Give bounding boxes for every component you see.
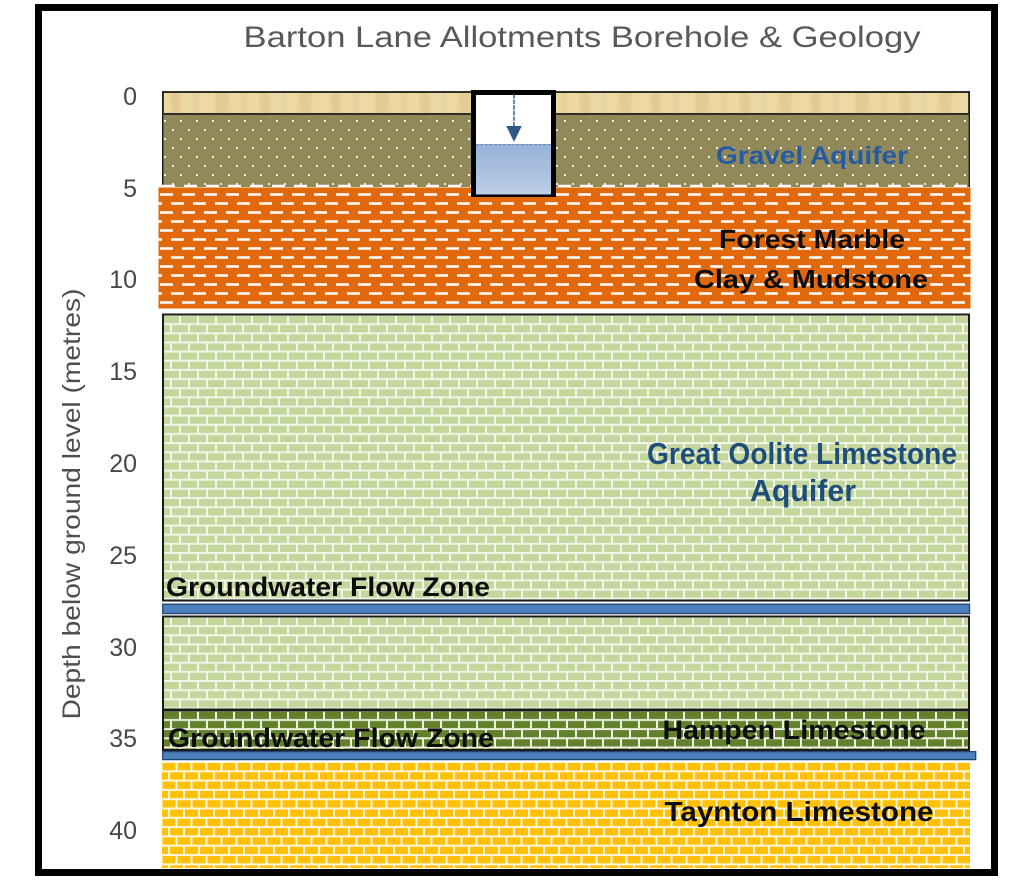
svg-text:Groundwater Flow Zone: Groundwater Flow Zone [168, 723, 494, 753]
svg-text:40: 40 [109, 817, 137, 845]
svg-text:20: 20 [109, 450, 137, 478]
svg-text:25: 25 [109, 542, 137, 570]
svg-text:Groundwater Flow Zone: Groundwater Flow Zone [166, 572, 490, 602]
svg-text:15: 15 [109, 358, 137, 386]
svg-text:Aquifer: Aquifer [750, 473, 856, 508]
svg-text:35: 35 [109, 725, 137, 753]
svg-text:10: 10 [109, 266, 137, 294]
svg-text:Depth below ground level (metr: Depth below ground level (metres) [58, 289, 86, 720]
svg-text:Forest Marble: Forest Marble [719, 224, 905, 254]
svg-text:Taynton Limestone: Taynton Limestone [665, 796, 934, 827]
svg-text:Clay & Mudstone: Clay & Mudstone [694, 264, 928, 294]
svg-text:Gravel Aquifer: Gravel Aquifer [716, 142, 908, 170]
svg-text:Barton Lane Allotments Borehol: Barton Lane Allotments Borehole & Geolog… [244, 21, 921, 54]
svg-text:30: 30 [109, 634, 137, 662]
svg-text:Hampen Limestone: Hampen Limestone [663, 715, 926, 745]
svg-text:5: 5 [123, 175, 137, 203]
svg-text:0: 0 [123, 83, 137, 111]
svg-text:Great Oolite Limestone: Great Oolite Limestone [647, 436, 957, 471]
